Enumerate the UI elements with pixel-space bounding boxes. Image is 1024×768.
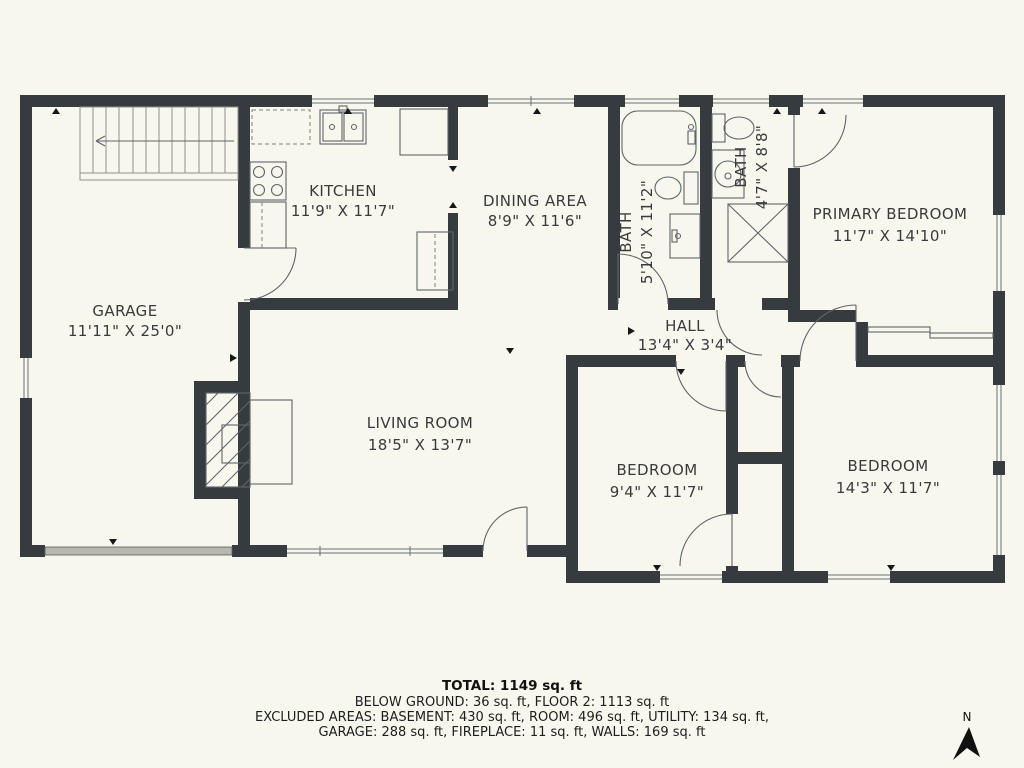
room-dims: 4'7" X 8'8" [753, 125, 771, 209]
toilet-icon [655, 172, 698, 204]
stove-icon [250, 162, 286, 200]
kitchen-counter [250, 110, 310, 248]
room-name: KITCHEN [309, 182, 377, 200]
garage-door [45, 545, 232, 557]
room-dims: 13'4" X 3'4" [638, 336, 732, 354]
room-name: BATH [617, 211, 635, 252]
room-dims: 5'10" X 11'2" [638, 180, 656, 284]
summary-line4: GARAGE: 288 sq. ft, FIREPLACE: 11 sq. ft… [319, 725, 706, 740]
window-dining [488, 95, 574, 107]
door-hall-primary [794, 115, 846, 167]
room-dims: 11'9" X 11'7" [291, 202, 395, 220]
window-garage-left [20, 358, 32, 398]
room-name: HALL [665, 317, 705, 335]
room-label-bedroom2: BEDROOM 14'3" X 11'7" [836, 457, 940, 497]
room-dims: 14'3" X 11'7" [836, 479, 940, 497]
room-label-living: LIVING ROOM 18'5" X 13'7" [367, 414, 473, 454]
room-label-bedroom1: BEDROOM 9'4" X 11'7" [610, 461, 704, 501]
room-name: BATH [732, 146, 750, 187]
window-bath1 [625, 95, 679, 107]
room-dims: 11'7" X 14'10" [833, 227, 947, 245]
summary-line2: BELOW GROUND: 36 sq. ft, FLOOR 2: 1113 s… [355, 695, 670, 710]
room-label-dining: DINING AREA 8'9" X 11'6" [483, 192, 587, 230]
bath2-fixtures [712, 114, 788, 262]
room-label-kitchen: KITCHEN 11'9" X 11'7" [291, 182, 395, 220]
room-name: BEDROOM [847, 457, 928, 475]
room-label-garage: GARAGE 11'11" X 25'0" [68, 302, 182, 340]
room-name: BEDROOM [616, 461, 697, 479]
room-name: DINING AREA [483, 192, 587, 210]
room-label-bath1: BATH 5'10" X 11'2" [617, 180, 656, 284]
north-label: N [963, 710, 972, 724]
door-garage-kitchen [244, 248, 296, 300]
closet-sliding-doors [868, 327, 993, 338]
dining-cabinet [417, 232, 453, 290]
room-dims: 8'9" X 11'6" [488, 212, 582, 230]
floor-plan: GARAGE 11'11" X 25'0" KITCHEN 11'9" X 11… [0, 0, 1024, 768]
window-living-bottom [287, 545, 443, 557]
compass: N [953, 710, 980, 760]
shower-icon [728, 204, 788, 262]
bathtub-icon [622, 111, 696, 165]
door-hall-bedroom1 [676, 361, 726, 411]
window-bedroom2-bottom [828, 571, 890, 583]
vanity-sink-icon [670, 214, 700, 258]
window-kitchen [312, 95, 374, 107]
room-name: GARAGE [92, 302, 157, 320]
room-dims: 9'4" X 11'7" [610, 483, 704, 501]
door-bedroom1-closet [680, 514, 732, 566]
north-arrow-icon [953, 727, 980, 760]
front-door [483, 507, 527, 551]
toilet-icon [712, 114, 754, 142]
room-name: LIVING ROOM [367, 414, 473, 432]
room-label-bath2: BATH 4'7" X 8'8" [732, 125, 771, 209]
room-label-primary: PRIMARY BEDROOM 11'7" X 14'10" [813, 205, 968, 245]
window-bedroom1-bottom [660, 571, 722, 583]
summary-total: TOTAL: 1149 sq. ft [442, 678, 583, 694]
area-summary: TOTAL: 1149 sq. ft BELOW GROUND: 36 sq. … [255, 678, 769, 740]
window-bedroom2-right-upper [993, 385, 1005, 461]
window-bath2 [713, 95, 769, 107]
room-label-hall: HALL 13'4" X 3'4" [638, 317, 732, 354]
room-dims: 11'11" X 25'0" [68, 322, 182, 340]
summary-line3: EXCLUDED AREAS: BASEMENT: 430 sq. ft, RO… [255, 710, 769, 725]
refrigerator-icon [400, 109, 448, 155]
window-primary-top [803, 95, 863, 107]
kitchen-sink-icon [320, 106, 366, 144]
window-bedroom2-right-lower [993, 475, 1005, 555]
window-primary-right [993, 215, 1005, 291]
stairs-icon [80, 107, 238, 180]
room-dims: 18'5" X 13'7" [368, 436, 472, 454]
room-name: PRIMARY BEDROOM [813, 205, 968, 223]
